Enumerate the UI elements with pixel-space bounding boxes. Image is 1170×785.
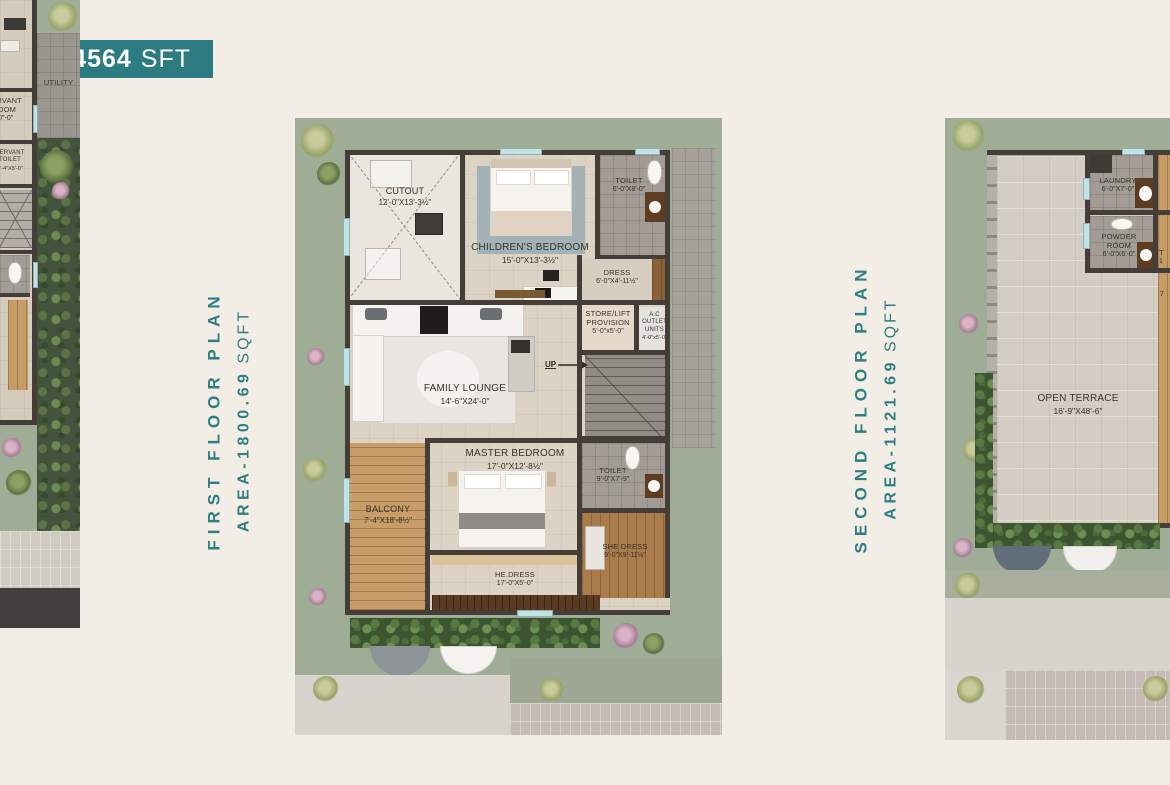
hedge xyxy=(350,618,600,648)
wall xyxy=(345,300,465,305)
plant xyxy=(313,676,339,702)
wood-floor xyxy=(8,300,28,390)
pillow xyxy=(534,170,569,185)
cutout-label: CUTOUT 12'-0"X13'-3½" xyxy=(350,186,460,208)
second-floor-caption: SECOND FLOOR PLAN AREA-1121.69SQFT xyxy=(826,258,926,558)
first-floor-area-value: AREA-1800.69 xyxy=(236,369,253,532)
first-floor-area: AREA-1800.69SQFT xyxy=(236,290,254,550)
front-paving xyxy=(0,531,80,588)
vanity xyxy=(645,474,663,498)
plant xyxy=(959,314,979,334)
up-label: UP xyxy=(545,360,556,369)
window xyxy=(517,610,553,617)
interior-wood-floor xyxy=(1158,150,1170,523)
step-semicircle xyxy=(370,646,430,676)
wall xyxy=(460,150,465,300)
dress-label: DRESS 6'-0"X4'-11½" xyxy=(580,268,654,287)
sofa-arm xyxy=(352,335,384,422)
throw-pillow xyxy=(365,308,387,320)
window xyxy=(1083,223,1090,249)
window xyxy=(1122,148,1145,155)
wall xyxy=(430,550,582,555)
furniture-sketch xyxy=(415,213,443,235)
window xyxy=(343,348,350,386)
master-bed xyxy=(458,470,546,548)
balcony-label: BALCONY 7'-4"X18'-8½" xyxy=(347,504,429,526)
toilet-master-label: TOILET 9'-0"X7'-9" xyxy=(580,466,646,485)
wall xyxy=(0,184,32,188)
first-floor-title: FIRST FLOOR PLAN xyxy=(205,290,225,550)
driveway xyxy=(0,588,80,628)
pillow xyxy=(496,170,531,185)
counter xyxy=(4,18,26,30)
plant xyxy=(953,120,985,152)
tv-console xyxy=(495,290,545,298)
plant xyxy=(1143,676,1169,702)
plant xyxy=(957,676,985,704)
wall xyxy=(577,300,670,305)
servant-room-label: SERVANT ROOM X7'-0" xyxy=(0,96,34,124)
paver-strip xyxy=(510,703,722,735)
nightstand xyxy=(547,472,556,486)
plant xyxy=(953,538,973,558)
wall xyxy=(32,0,37,425)
pillow xyxy=(505,474,542,489)
front-paving xyxy=(945,598,1170,670)
wall xyxy=(0,250,32,254)
plant xyxy=(955,573,981,599)
second-floor-area: AREA-1121.69SQFT xyxy=(883,263,901,553)
master-bedroom-label: MASTER BEDROOM 17'-0"X12'-8½" xyxy=(435,448,595,472)
counter xyxy=(1090,155,1112,173)
wall xyxy=(595,255,670,259)
lounge-chair-pillow xyxy=(511,340,530,353)
first-floor-plan: CUTOUT 12'-0"X13'-3½" CHILDREN'S BEDROOM… xyxy=(295,118,722,735)
plant xyxy=(317,162,341,186)
toilet-top-label: TOILET 6'-0"X8'-0" xyxy=(598,176,660,195)
wall xyxy=(577,508,670,513)
headboard xyxy=(491,159,571,168)
ground-floor-plan-partial: UTILITY SERVANT ROOM X7'-0" SERVANT TOIL… xyxy=(0,0,80,628)
window xyxy=(33,262,38,288)
pillow xyxy=(464,474,501,489)
plant xyxy=(52,182,70,200)
powder-room-label: POWDER ROOM 6'-0"X6'-0" xyxy=(1088,232,1150,260)
wall xyxy=(430,438,670,443)
plant xyxy=(540,678,564,702)
vanity xyxy=(645,192,665,222)
second-floor-area-value: AREA-1121.69 xyxy=(883,358,900,520)
blanket xyxy=(459,513,545,529)
laundry-label: LAUNDRY 6'-0"X7'-0" xyxy=(1088,176,1148,195)
toilet-fixture xyxy=(1111,218,1133,230)
he-dress-shelf xyxy=(432,555,580,565)
window xyxy=(635,148,660,155)
plant xyxy=(2,438,22,458)
servant-toilet-label: SERVANT TOILET 3'-4"X5'-0" xyxy=(0,150,38,172)
hedge-column xyxy=(975,373,993,548)
plant xyxy=(613,623,639,649)
plant xyxy=(643,633,665,655)
plant xyxy=(6,470,32,496)
window xyxy=(343,478,350,523)
plant xyxy=(40,150,74,184)
cabinet xyxy=(0,40,20,52)
first-floor-area-unit: SQFT xyxy=(236,308,253,363)
furniture-sketch xyxy=(370,160,412,188)
he-dress-label: HE.DRESS 17'-0"X5'-0" xyxy=(450,570,580,589)
throw-pillow xyxy=(480,308,502,320)
toilet-fixture xyxy=(8,262,22,284)
family-lounge-label: FAMILY LOUNGE 14'-6"X24'-0" xyxy=(400,383,530,407)
wall xyxy=(577,350,670,355)
up-arrow-icon xyxy=(558,361,588,369)
open-terrace-label: OPEN TERRACE 16'-9"X48'-6" xyxy=(1003,393,1153,417)
wall xyxy=(345,610,670,615)
wall xyxy=(577,255,582,440)
window xyxy=(343,218,350,256)
second-floor-plan-partial: OPEN TERRACE 16'-9"X48'-6" LAUNDRY 6'-0"… xyxy=(945,118,1170,740)
window xyxy=(1083,178,1090,200)
blanket xyxy=(491,211,571,235)
store-lift-label: STORE/LIFT PROVISION 5'-0"x5'-0" xyxy=(580,309,636,337)
coffee-table xyxy=(420,306,448,334)
wall xyxy=(0,88,32,92)
plant xyxy=(48,2,78,32)
childrens-bed xyxy=(490,158,572,236)
plant xyxy=(301,124,335,158)
wall xyxy=(595,150,600,258)
first-floor-caption: FIRST FLOOR PLAN AREA-1800.69SQFT xyxy=(179,270,279,570)
wall xyxy=(665,150,670,598)
utility-label: UTILITY xyxy=(37,78,80,87)
nightstand xyxy=(448,472,457,486)
wall xyxy=(0,420,37,425)
plant xyxy=(303,458,327,482)
wall xyxy=(425,438,430,615)
second-floor-area-unit: SQFT xyxy=(883,297,900,352)
second-floor-title: SECOND FLOOR PLAN xyxy=(852,263,872,553)
step-semicircle xyxy=(440,646,497,674)
bua-badge-unit: SFT xyxy=(141,45,191,74)
toilet-partial-label: T 1 xyxy=(1159,248,1170,267)
wall xyxy=(634,305,639,350)
wall xyxy=(0,293,30,297)
furniture-sketch xyxy=(365,248,401,280)
dim-fragment-label: 7 xyxy=(1160,290,1170,300)
side-paving xyxy=(672,148,715,448)
plant xyxy=(309,588,327,606)
chair xyxy=(543,270,559,281)
wall xyxy=(0,140,32,144)
window xyxy=(500,148,542,155)
wall xyxy=(577,443,582,598)
she-dress-label: SHE DRESS 9'-0"X9'-11½" xyxy=(587,542,663,561)
plant xyxy=(307,348,325,366)
wall xyxy=(1153,150,1158,273)
room-balcony xyxy=(350,443,426,610)
